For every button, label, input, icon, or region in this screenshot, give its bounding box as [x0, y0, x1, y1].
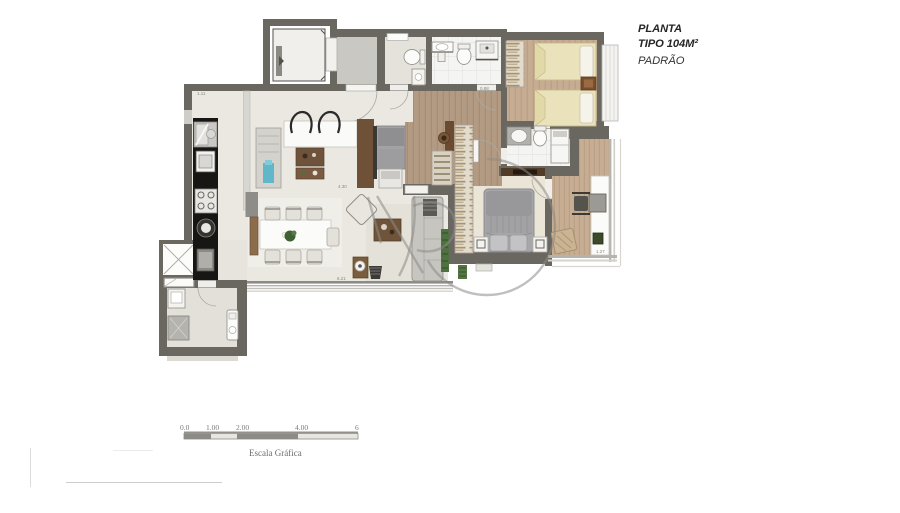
svg-text:4.00: 4.00 [295, 423, 308, 432]
svg-text:2.00: 2.00 [236, 423, 249, 432]
svg-text:1.27: 1.27 [596, 249, 605, 254]
svg-text:6.21: 6.21 [337, 276, 346, 281]
svg-text:0.88: 0.88 [480, 86, 489, 91]
svg-text:0.0: 0.0 [180, 423, 190, 432]
svg-text:1.00: 1.00 [206, 423, 219, 432]
svg-text:Escala Gráfica: Escala Gráfica [249, 448, 302, 458]
svg-text:6: 6 [355, 423, 359, 432]
svg-text:4.30: 4.30 [338, 184, 347, 189]
svg-text:1.11: 1.11 [197, 91, 206, 96]
